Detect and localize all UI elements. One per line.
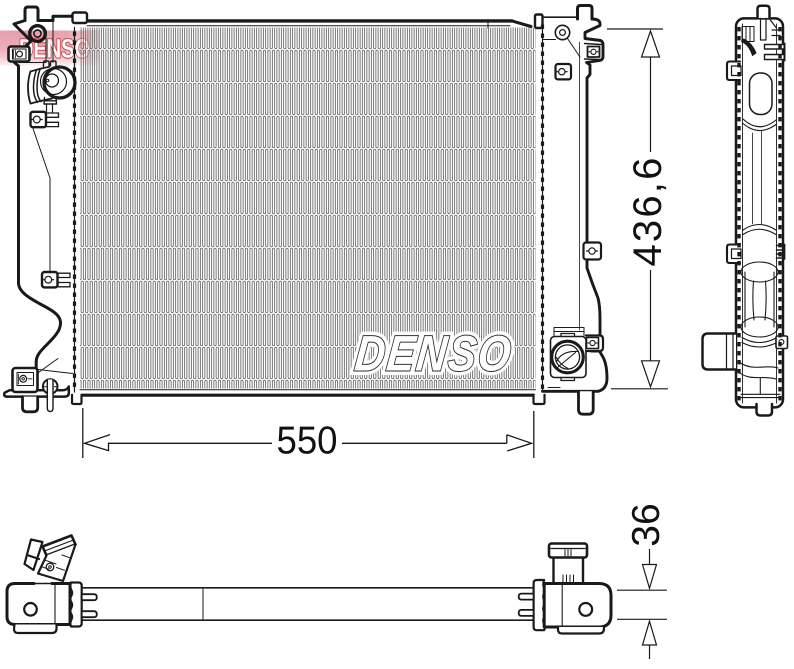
svg-text:36: 36 xyxy=(625,503,668,546)
svg-text:550: 550 xyxy=(277,420,338,463)
svg-text:436,6: 436,6 xyxy=(626,155,670,266)
svg-text:DENSO: DENSO xyxy=(352,326,515,382)
